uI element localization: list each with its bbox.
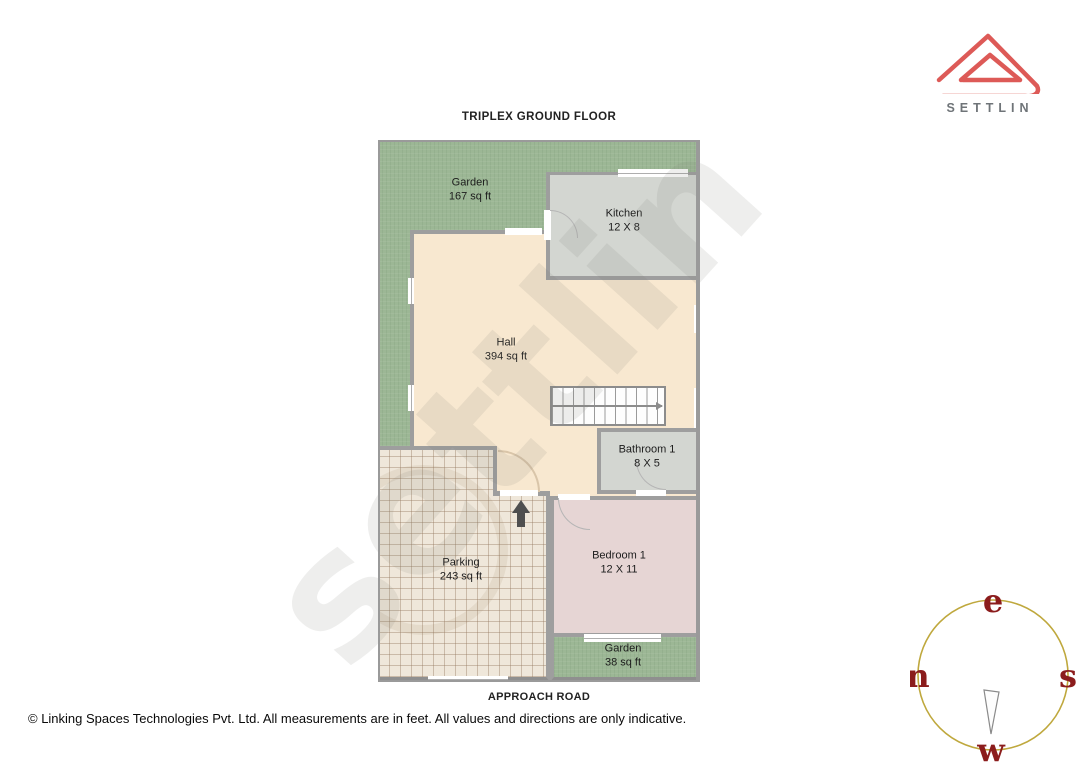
settlin-logo-icon <box>925 22 1050 94</box>
label-kitchen: Kitchen12 X 8 <box>606 207 643 236</box>
staircase-rail <box>550 405 662 407</box>
compass-needle <box>984 690 999 734</box>
plan-title: TRIPLEX GROUND FLOOR <box>378 111 700 123</box>
floorplan-page: SETTLIN TRIPLEX GROUND FLOOR <box>0 0 1080 764</box>
parking-entrance-opening <box>428 676 508 682</box>
stairs-landing-opening <box>694 388 700 428</box>
hall-left-window-1 <box>408 278 414 304</box>
label-bedroom-1: Bedroom 112 X 11 <box>592 549 646 578</box>
compass-rose: e n s w <box>910 588 1076 764</box>
brand-name: SETTLIN <box>925 101 1050 115</box>
compass-letter-bottom: w <box>976 731 1006 764</box>
bathroom-door-gap <box>636 490 666 496</box>
brand-block: SETTLIN <box>925 22 1050 115</box>
floorplan-plot: Garden167 sq ft Kitchen12 X 8 Hall394 sq… <box>378 140 700 682</box>
compass-ring <box>918 600 1068 750</box>
copyright-note: © Linking Spaces Technologies Pvt. Ltd. … <box>28 711 686 726</box>
approach-road-label: APPROACH ROAD <box>378 691 700 703</box>
label-hall: Hall394 sq ft <box>485 336 527 365</box>
label-parking: Parking243 sq ft <box>440 556 482 585</box>
compass-letter-right: s <box>1059 657 1076 695</box>
entrance-arrow-icon <box>512 500 530 528</box>
compass-letter-top: e <box>983 588 1003 620</box>
compass-letter-left: n <box>910 657 930 695</box>
kitchen-top-window <box>618 169 688 177</box>
staircase-direction-arrow-icon <box>656 402 663 410</box>
hall-right-window <box>694 305 700 333</box>
hall-left-window-2 <box>408 385 414 411</box>
hall-garden-door-gap <box>505 228 542 235</box>
label-bathroom-1: Bathroom 18 X 5 <box>619 443 676 472</box>
label-garden-top: Garden167 sq ft <box>449 176 491 205</box>
label-garden-bottom: Garden38 sq ft <box>605 642 642 671</box>
